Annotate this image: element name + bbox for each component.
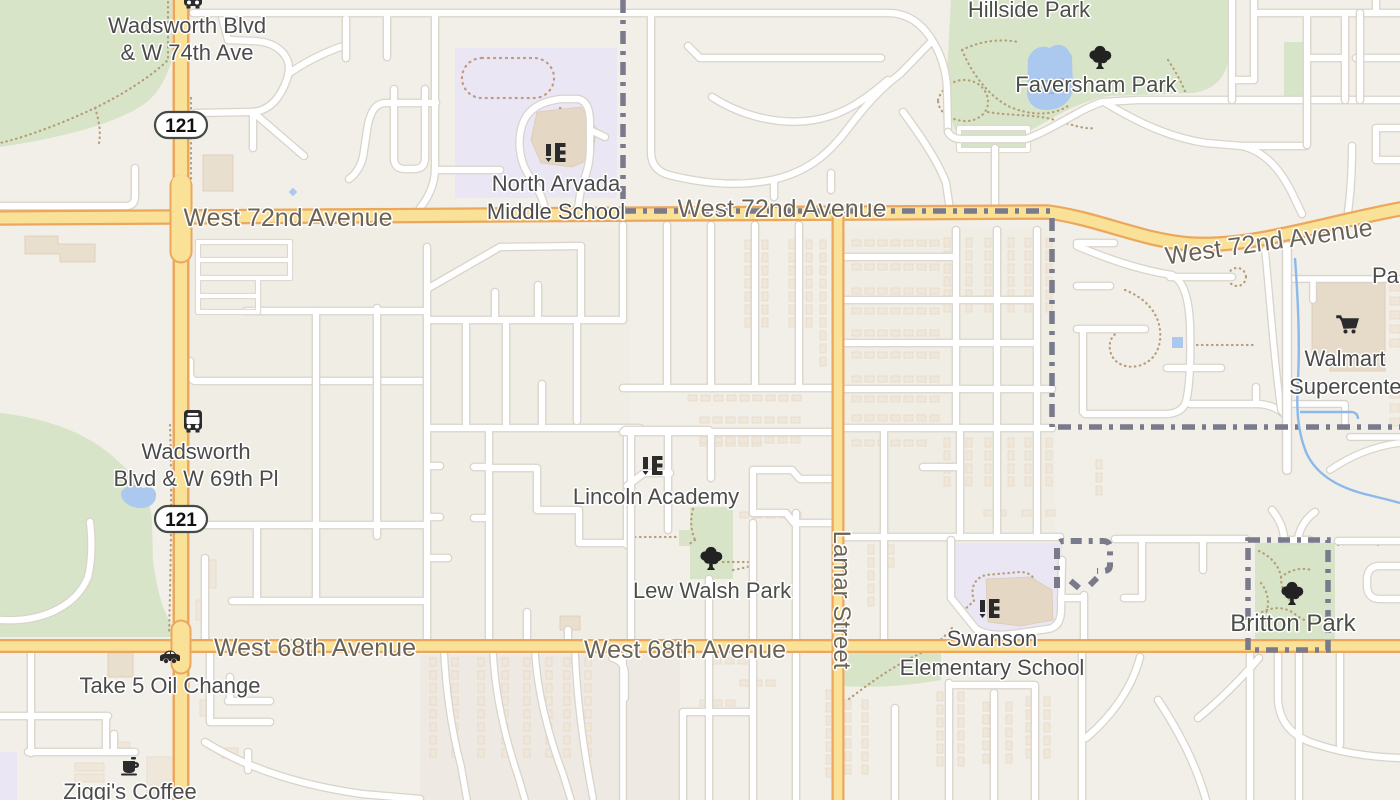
svg-text:121: 121	[165, 510, 197, 531]
svg-text:West 68th Avenue: West 68th Avenue	[584, 636, 786, 664]
svg-text:West 72nd Avenue: West 72nd Avenue	[678, 195, 887, 223]
svg-text:Lew Walsh Park: Lew Walsh Park	[633, 578, 792, 603]
svg-text:North Arvada: North Arvada	[492, 171, 621, 196]
svg-text:Take 5 Oil Change: Take 5 Oil Change	[80, 673, 261, 698]
svg-text:& W 74th Ave: & W 74th Ave	[121, 40, 254, 65]
svg-text:West 68th Avenue: West 68th Avenue	[214, 634, 416, 662]
svg-text:Lincoln Academy: Lincoln Academy	[573, 484, 739, 509]
svg-text:Hillside Park: Hillside Park	[968, 0, 1091, 22]
svg-text:Ziggi's Coffee: Ziggi's Coffee	[63, 779, 196, 800]
svg-text:West 72nd Avenue: West 72nd Avenue	[184, 204, 393, 232]
svg-text:121: 121	[165, 116, 197, 137]
svg-text:Elementary School: Elementary School	[900, 655, 1085, 680]
svg-text:Wadsworth: Wadsworth	[141, 439, 250, 464]
svg-text:Faversham Park: Faversham Park	[1015, 72, 1177, 97]
svg-text:Swanson: Swanson	[947, 626, 1038, 651]
svg-text:Blvd & W 69th Pl: Blvd & W 69th Pl	[113, 466, 278, 491]
svg-text:Britton Park: Britton Park	[1230, 610, 1356, 637]
svg-text:Supercenter: Supercenter	[1289, 374, 1400, 399]
svg-text:Walmart: Walmart	[1304, 346, 1385, 371]
svg-text:Wadsworth Blvd: Wadsworth Blvd	[108, 13, 266, 38]
svg-text:Lamar Street: Lamar Street	[828, 531, 855, 670]
svg-text:Middle School: Middle School	[487, 199, 625, 224]
svg-text:Pa: Pa	[1372, 263, 1400, 288]
